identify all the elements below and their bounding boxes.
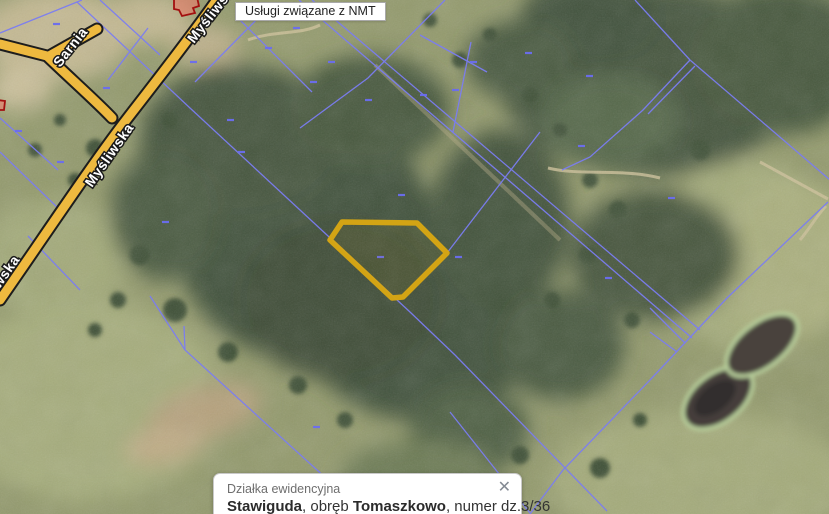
geoportal-map-app: { "colors": { "road_fill": "#eeb93f", "r… [0,0,829,514]
commune-name: Stawiguda [227,498,302,514]
parcel-description: Stawiguda, obręb Tomaszkowo, numer dz.3/… [227,498,507,514]
parcel-info-popup: Działka ewidencyjna Stawiguda, obręb Tom… [213,473,522,514]
district-name: Tomaszkowo [353,498,446,514]
map-tooltip-text: Usługi związane z NMT [245,4,376,18]
popup-title: Działka ewidencyjna [227,482,507,496]
building-footprint-edge [0,100,5,110]
parcel-number: , numer dz.3/36 [446,498,550,514]
close-icon[interactable]: ✕ [498,479,511,495]
map-viewport[interactable]: Sarnia Myśliwska Myśliwska Myśliwska [0,0,829,514]
separator-obreb: , obręb [302,498,353,514]
aerial-basemap: Sarnia Myśliwska Myśliwska Myśliwska [0,0,829,514]
map-tooltip: Usługi związane z NMT [235,2,386,21]
